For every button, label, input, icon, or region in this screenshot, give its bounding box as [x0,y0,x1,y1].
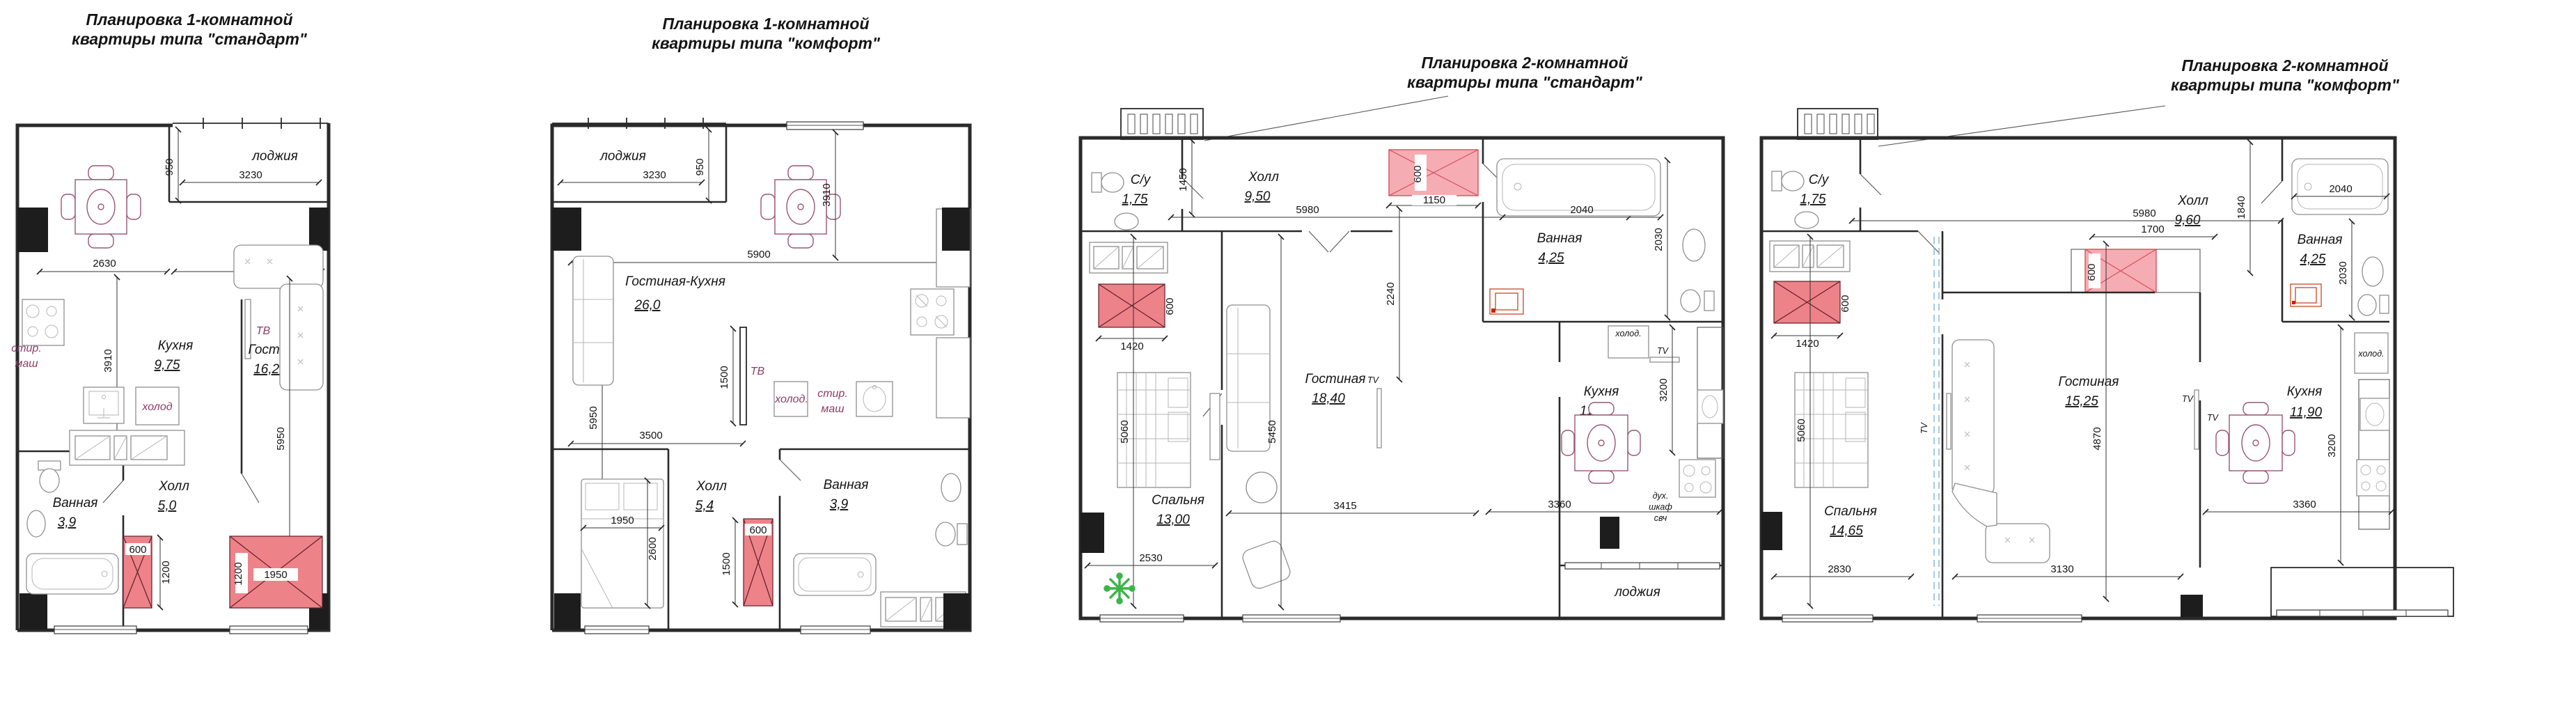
dim-living-height: 5950 [275,427,287,450]
washer-label-1: стир. [817,388,848,400]
room-label-bedroom: Спальня [1824,504,1877,519]
fridge-label: холод. [1615,329,1641,338]
room-label-hall: Холл [696,479,727,494]
shaft-highlight: 1950 1200 [230,536,322,608]
cabinet-row-icon [1090,242,1168,273]
tv-icon [1947,393,1951,449]
corner-sofa-icon [1952,340,2050,563]
fridge-label: холод. [2357,349,2384,359]
bath-door-leaf [103,480,123,503]
plan-title-line1: Планировка 2-комнатной [1422,54,1628,72]
sink-icon [856,382,893,416]
plan-2k-comfort: Планировка 2-комнатной квартиры типа "ко… [1761,56,2453,622]
dim-shaft-left-width: 1420 [1796,338,1819,350]
column [943,593,970,630]
water-heater-icon [1490,289,1523,314]
room-label-kitchen: Кухня [2287,384,2323,399]
column [17,208,48,252]
toilet-icon [1681,290,1714,312]
dim-bedroom-width: 2830 [1828,563,1851,575]
sink-icon [1697,390,1723,423]
dining-table-icon [61,166,141,248]
wardrobe-icon [1210,393,1220,460]
dim-pass-height: 2240 [1385,282,1397,305]
plan-title-line1: Планировка 1-комнатной [86,10,293,29]
room-area-hall: 5,0 [158,499,177,513]
stove-icon [2357,460,2389,496]
dim-living-width: 3415 [1333,500,1356,512]
living-door-leaf [242,474,259,503]
stove-icon [911,289,954,335]
room-area-living: 18,40 [1312,391,1345,406]
plant-icon [1105,574,1134,603]
plan-title-line2: квартиры типа "стандарт" [1407,73,1643,91]
column [552,208,581,251]
window [585,626,649,634]
plan-title-line1: Планировка 1-комнатной [663,15,870,33]
room-area-living-kitchen: 26,0 [634,298,661,313]
dim-shaft1-height: 1200 [160,561,172,584]
ventilation-grille-icon [1798,109,1878,139]
dim-kitchen-width: 3360 [1548,499,1571,510]
dining-table-icon [2216,403,2295,483]
room-area-hall: 5,4 [696,499,714,513]
dim-shaft1-width: 600 [129,544,146,556]
room-area-hall: 9,50 [1245,189,1271,204]
column [309,208,329,251]
dim-loggia-depth: 950 [164,158,175,175]
tv-icon [1650,357,1679,362]
dim-right-height: 3910 [821,183,833,206]
column [1081,513,1104,553]
room-label-loggia: лоджия [1614,585,1660,600]
title-callout-line [1878,106,2165,146]
dim-loggia-depth: 950 [694,158,706,175]
window [787,122,863,130]
sink-icon [2362,257,2383,286]
washer-label-2: маш [821,403,844,415]
room-area-living: 15,25 [2065,394,2098,409]
floor-plans-sheet: Планировка 1-комнатной квартиры типа "ст… [0,0,2576,711]
oven-label-1: дух. [1653,491,1669,501]
tv-label: ТВ [256,325,271,337]
fridge-label: холод. [774,393,808,405]
stove-icon [22,299,64,345]
dim-living-height: 4870 [2091,427,2103,450]
coffee-table-icon [1246,472,1277,503]
column [942,208,970,251]
dim-su-height: 1450 [1177,168,1189,191]
room-label-bath: Ванная [824,478,869,492]
dining-table-icon [1562,403,1640,483]
dim-bath-width: 2040 [1570,204,1593,216]
dim-kitchen-height: 3200 [2326,434,2338,457]
tv-label-kitchen: TV [1657,346,1670,356]
sliding-partition [1934,237,1939,606]
room-label-bath: Ванная [1537,231,1582,246]
toilet-icon [1772,171,1804,191]
sink-icon [1795,212,1819,228]
room-label-hall: Холл [158,479,189,494]
dim-hall-height: 1840 [2236,196,2247,219]
tv-partition [740,327,746,425]
dim-bed-height: 2600 [647,537,659,560]
oven-label-2: шкаф [1649,502,1672,512]
room-area-bedroom: 13,00 [1156,513,1190,527]
cabinet-row-icon [70,430,184,465]
dim-kitchen-width: 3360 [2293,499,2316,510]
tv-label-living: TV [1367,375,1380,385]
room-label-bath: Ванная [2298,233,2343,247]
column [554,593,581,630]
room-area-bath: 4,25 [1539,251,1564,265]
dim-loggia-width: 3230 [643,169,666,181]
sink-icon [27,510,45,537]
room-area-bath: 3,9 [830,497,849,512]
room-area-bath: 3,9 [58,515,77,530]
tv-label-kitchen-side: TV [2207,413,2220,423]
dim-bedroom-width: 2530 [1139,552,1162,564]
shaft-highlight-pink: 600 [1389,150,1478,196]
room-area-bedroom: 14,65 [1830,524,1863,538]
room-label-su: С/у [1809,173,1830,187]
toilet-icon [936,522,967,546]
bath-door-leaf [780,460,801,480]
dim-shaft-tr-height: 600 [1412,165,1424,182]
dim-kitchen-height: 3910 [102,349,114,372]
ventilation-grille-icon [1121,109,1203,139]
sofa-icon [573,256,613,385]
plan-2k-standard: Планировка 2-комнатной квартиры типа "ст… [1081,54,1723,622]
room-area-kitchen: 11,90 [2290,405,2323,420]
dim-loggia-width: 3230 [239,169,262,181]
sink-icon [941,474,961,501]
tv-label-living: TV [2182,394,2194,404]
wardrobe-shaft-icon: 600 [2071,249,2200,292]
room-label-living: Гостиная [2059,375,2119,389]
window [1100,615,1184,622]
plan-title-line1: Планировка 2-комнатной [2182,56,2389,75]
dim-hall-width: 5980 [2133,208,2155,219]
title-callout-line [1204,96,1448,141]
oven-label-3: свч [1654,513,1667,523]
room-area-su: 1,75 [1800,192,1826,207]
window [1565,563,1720,569]
tv-icon [2194,390,2199,449]
dim-hall-width: 3500 [639,430,662,442]
column [1761,512,1782,550]
dim-bath-width: 2040 [2329,183,2352,195]
dim-left-height: 5950 [588,406,599,429]
tv-label-bedroom: TV [1919,421,1929,434]
column [19,593,47,630]
shaft-highlight: 600 [123,536,152,608]
room-label-kitchen: Кухня [1584,384,1619,399]
water-heater-icon [2291,284,2321,306]
shaft-highlight [1099,284,1165,327]
bedroom-walls [1860,231,1942,618]
dim-kitchen-width: 2630 [93,258,116,269]
room-area-kitchen: 9,75 [155,358,180,373]
room-label-hall: Холл [1248,170,1279,185]
window [1782,615,1873,622]
dim-shaft-left-height: 600 [1839,295,1851,312]
dim-bed-width: 1950 [611,515,634,526]
dim-shaft-left-width: 1420 [1120,341,1143,352]
dim-shaft2-height: 1200 [233,562,244,585]
toilet-icon [1092,173,1124,192]
window [1977,615,2082,622]
plan-1k-comfort: Планировка 1-комнатной квартиры типа "ко… [552,15,970,634]
dim-main-width: 5900 [747,249,770,260]
plan-title-line2: квартиры типа "комфорт" [652,34,881,52]
stove-icon [1679,460,1715,497]
dim-shaft-left-height: 600 [1164,297,1176,315]
dim-shaft2-width: 1950 [264,569,287,581]
dim-shaft-mid-height: 600 [2086,263,2098,281]
dim-shaft-width: 600 [749,524,767,536]
plan-title-line2: квартиры типа "комфорт" [2171,76,2400,94]
sink-icon [1683,229,1705,261]
balcony [2271,568,2453,616]
window [54,626,136,634]
bathtub-icon [26,554,118,594]
bath-door-leaf [2261,181,2282,203]
su-door-leaf [1860,174,1881,195]
door-leaves [1203,231,1349,416]
toilet-icon [38,461,61,492]
tv-icon [1377,389,1381,448]
sink-icon [84,387,124,423]
bathtub-icon [794,554,876,595]
room-label-bedroom: Спальня [1152,493,1204,508]
dim-tv-wall: 1500 [718,366,730,389]
room-area-bath: 4,25 [2300,252,2326,267]
window [230,626,308,634]
window [1243,615,1340,622]
toilet-icon [2358,295,2389,315]
dim-shaft-tr-width: 1150 [1423,194,1445,206]
dim-hall-width: 5980 [1296,204,1319,216]
room-label-loggia: лоджия [599,149,646,164]
armchair-icon [1241,539,1292,591]
shaft-highlight: 600 [744,519,773,606]
room-label-living: Гостиная [1305,372,1366,386]
room-label-loggia: лоджия [251,149,298,164]
washer-label-2: маш [15,358,38,370]
bedroom-door-leaf [1918,231,1940,253]
plan-1k-standard: Планировка 1-комнатной квартиры типа "ст… [11,10,329,634]
room-label-bath: Ванная [53,496,98,510]
room-label-su: С/у [1131,173,1152,187]
dim-bath-height: 2030 [2337,261,2349,284]
dim-bed-height: 5060 [1796,419,1807,442]
room-label-living-kitchen: Гостиная-Кухня [625,274,725,289]
dim-living-height: 5450 [1266,420,1278,443]
room-area-su: 1,75 [1122,192,1148,207]
room-label-kitchen: Кухня [158,338,194,353]
plan-title-line2: квартиры типа "стандарт" [72,30,308,48]
fridge-label: холод [141,401,172,413]
shaft-highlight [1774,281,1840,323]
window [801,626,870,634]
column [1600,517,1619,549]
dim-shaft-height: 1500 [721,552,732,575]
tv-label: ТВ [751,366,765,377]
sofa-icon [1227,305,1270,451]
column [2181,595,2203,617]
dim-wardrobe-width: 1700 [2141,224,2164,235]
dim-bath-height: 2030 [1653,228,1665,251]
room-label-hall: Холл [2177,194,2208,208]
sink-icon [2360,398,2389,430]
dim-kitchen-height: 3200 [1658,378,1670,401]
dim-living-width: 3130 [2050,563,2073,575]
sink-icon [1115,213,1138,230]
dim-bed-height: 5060 [1119,420,1131,443]
